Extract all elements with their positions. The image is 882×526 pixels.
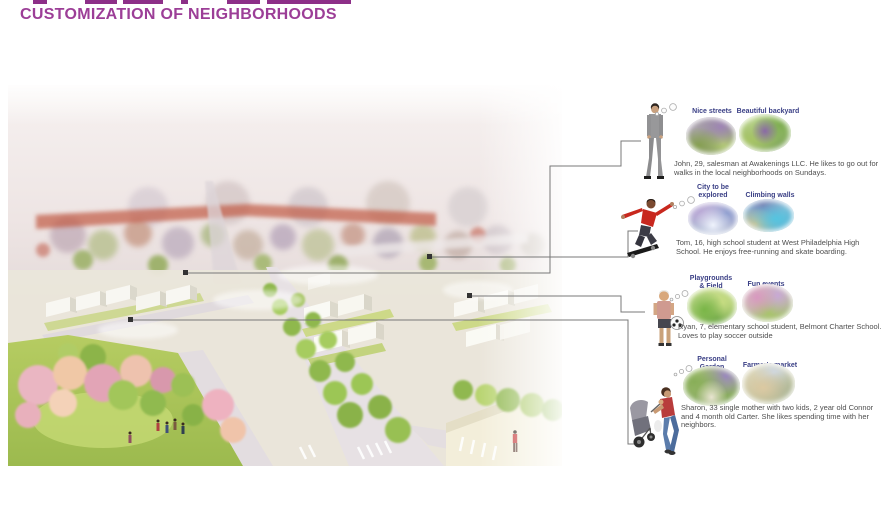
thumb-label: City to be explored [686,184,740,199]
right-edge-fade [478,85,562,466]
top-edge-artifact [181,0,188,4]
top-edge-artifact [267,0,351,4]
thumb-beautiful-backyard [739,114,791,152]
top-edge-artifact [227,0,260,4]
persona-tom: City to be explored Climbing walls Tom, … [615,183,882,272]
thumb-playgrounds-field [687,287,737,325]
slide: CUSTOMIZATION OF NEIGHBORHOODS [0,0,882,526]
top-edge-fade [8,85,562,125]
top-edge-artifact [85,0,117,4]
persona-john: Nice streets Beautiful backyard John, 29… [615,95,882,183]
thumb-personal-garden [683,366,740,406]
top-edge-artifact [123,0,163,4]
thumb-nice-streets [686,117,736,155]
top-edge-artifact [33,0,47,4]
persona-sharon: Personal Garden Farmer's market Sharon, … [615,352,882,462]
thumb-climbing-walls [743,199,794,232]
persona-ryan: Playgrounds & Field Fun events Ryan, 7, … [615,272,882,352]
thumb-label: Nice streets [687,108,737,116]
thought-bubbles-icon [653,102,679,118]
thumb-farmers-market [742,363,795,404]
persona-description: Tom, 16, high school student at West Phi… [676,239,881,256]
thumb-city-to-be-explored [688,202,738,235]
neighborhood-rendering [8,85,562,466]
thumb-fun-events [742,284,793,322]
mother-stroller-icon [626,368,684,456]
persona-description: Sharon, 33 single mother with two kids, … [681,404,882,430]
page-title: CUSTOMIZATION OF NEIGHBORHOODS [20,6,337,24]
persona-description: Ryan, 7, elementary school student, Belm… [678,323,882,340]
persona-description: John, 29, salesman at Awakenings LLC. He… [674,160,879,177]
